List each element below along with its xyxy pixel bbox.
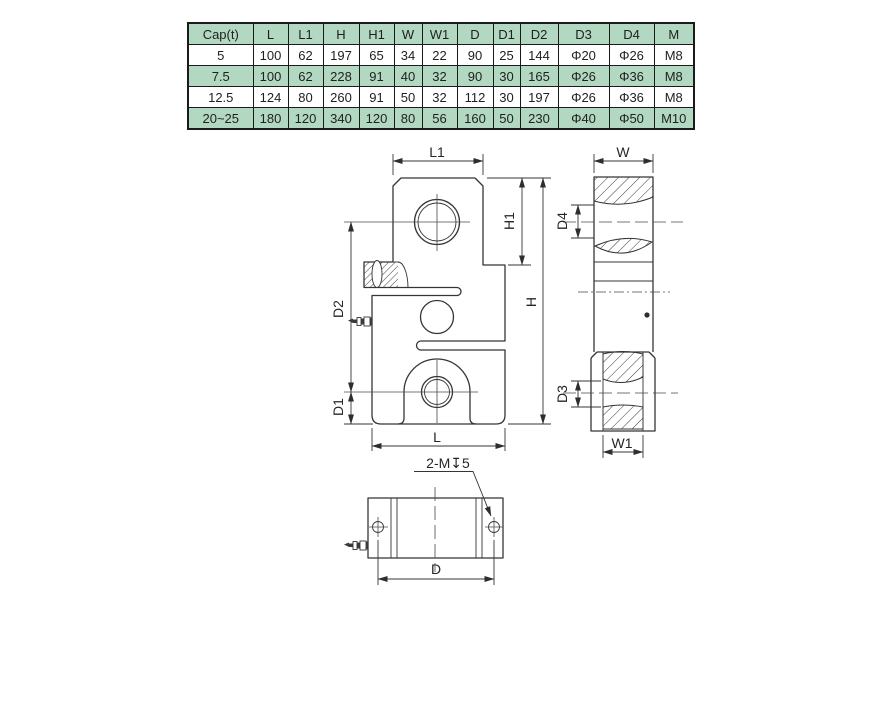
dim-label-h: H (523, 297, 539, 307)
cable-hole (372, 261, 382, 288)
technical-drawing: L1 H1 H D2 D1 L (0, 0, 878, 711)
dimension-d1: D1 (330, 392, 373, 424)
dimension-d4: D4 (554, 205, 594, 238)
flange-section-bottom (603, 405, 643, 429)
mounting-hole-left (369, 517, 388, 537)
bottom-hole (344, 360, 478, 423)
dim-label-d2: D2 (330, 300, 346, 318)
dim-label-l: L (433, 429, 441, 445)
dim-label-d4: D4 (554, 212, 570, 230)
top-hole (344, 194, 470, 251)
cable-connector-bottom (344, 541, 368, 550)
dim-label-w: W (616, 144, 630, 160)
screw-dot (644, 312, 649, 317)
middle-hole (421, 301, 454, 334)
dim-label-w1: W1 (612, 435, 633, 451)
dimension-l: L (372, 428, 505, 451)
dim-label-d3: D3 (554, 385, 570, 403)
dimension-l1: L1 (393, 144, 483, 175)
bottom-view: 2-M↧5 D (344, 455, 503, 585)
dim-label-h1: H1 (501, 212, 517, 230)
dimension-w: W (594, 144, 653, 173)
flange-section-top (603, 352, 643, 383)
dimension-w1: W1 (603, 435, 643, 458)
mounting-hole-right (485, 517, 503, 537)
thread-note: 2-M↧5 (414, 455, 491, 516)
dimension-d3: D3 (554, 381, 601, 407)
cable-connector (348, 317, 372, 326)
side-bore-section (595, 238, 652, 253)
side-view: W D4 D3 W1 (554, 144, 683, 458)
cable-gland-boss (364, 261, 408, 288)
dim-label-d1: D1 (330, 398, 346, 416)
dimension-d2: D2 (330, 222, 351, 392)
side-top-section (594, 177, 653, 204)
thread-note-label: 2-M↧5 (426, 455, 470, 471)
dimension-h1: H1 (487, 178, 551, 265)
dim-label-l1: L1 (429, 144, 445, 160)
front-view: L1 H1 H D2 D1 L (330, 144, 551, 451)
side-view-flange (591, 352, 655, 432)
bottom-view-body (368, 498, 503, 558)
dim-label-d: D (431, 561, 441, 577)
dimension-d: D (378, 540, 494, 585)
